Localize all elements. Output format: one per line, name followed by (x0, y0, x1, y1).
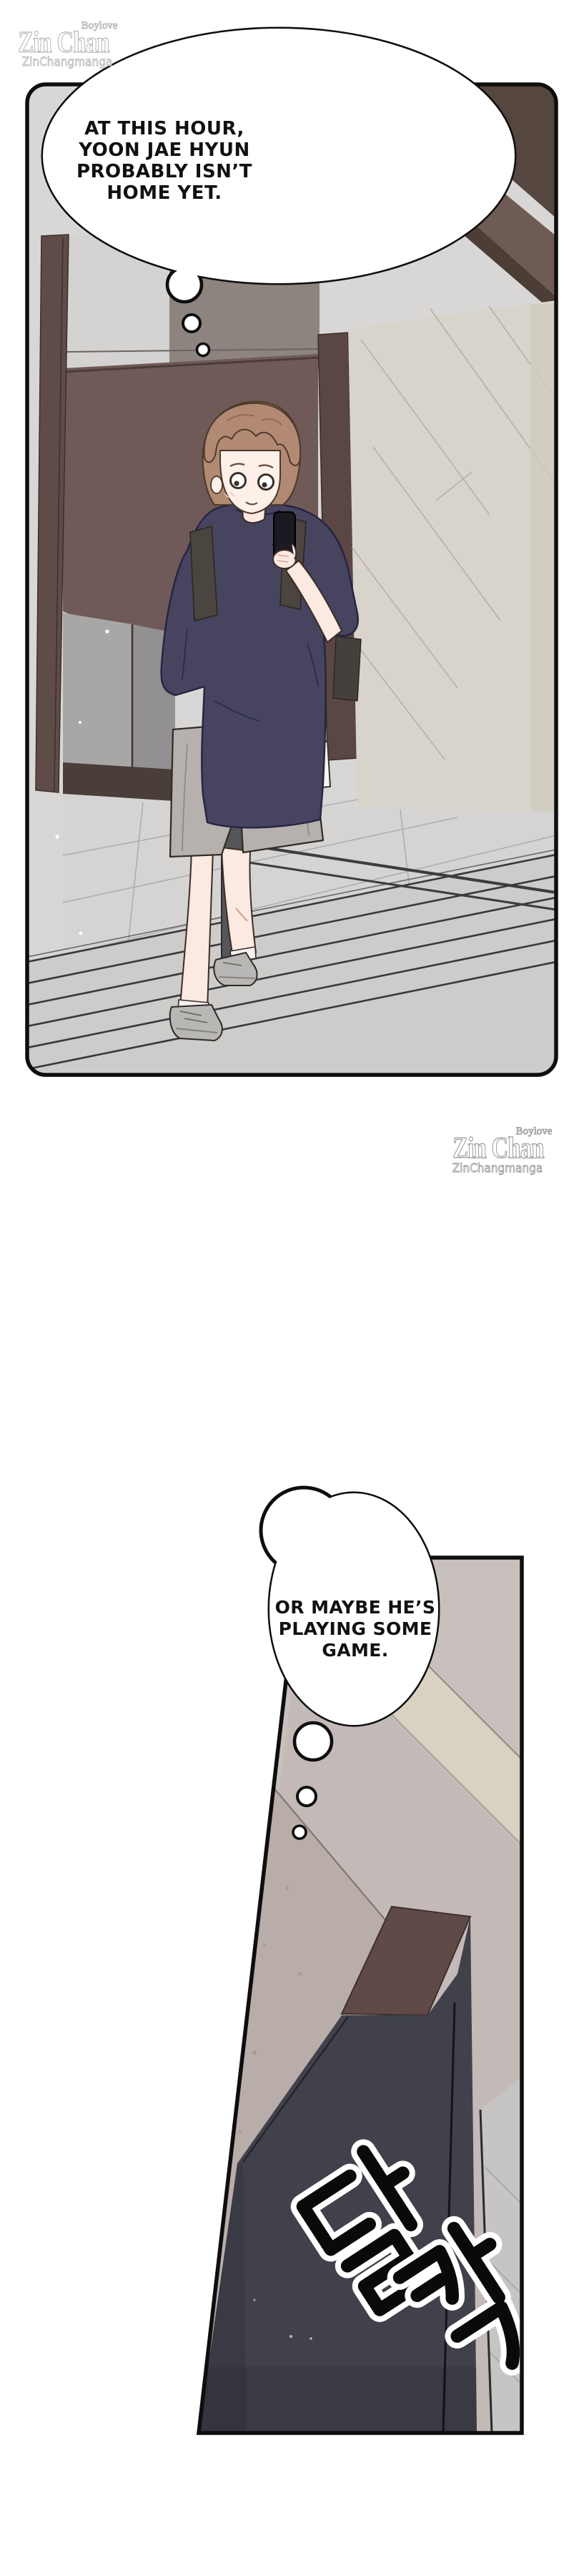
right-eye (259, 475, 274, 490)
bubble2-line-1: OR MAYBE HE’S (275, 1597, 436, 1618)
character-head (203, 402, 300, 513)
bubble1-line-2: YOON JAE HYUN (78, 139, 249, 161)
thought-trail-dot (197, 344, 209, 356)
panel1-glass-door (63, 613, 175, 785)
glass-sparkle (79, 721, 81, 724)
ear (211, 476, 222, 493)
bubble2-line-2: PLAYING SOME (279, 1618, 432, 1639)
glass-sparkle (105, 629, 109, 633)
webtoon-page: AT THIS HOUR, YOON JAE HYUN PROBABLY ISN… (0, 0, 579, 2576)
thought-trail-dot (297, 1787, 316, 1806)
watermark-top: Boylove Zin Chan ZinChangmanga (18, 20, 118, 69)
watermark-middle: Boylove Zin Chan ZinChangmanga (452, 1126, 553, 1175)
watermark-subtitle: ZinChangmanga (452, 1161, 543, 1175)
backpack-side (333, 636, 361, 701)
bubble1-line-4: HOME YET. (107, 182, 222, 204)
panel1-stone-wall (348, 300, 556, 812)
bubble2-line-3: GAME. (322, 1640, 388, 1661)
watermark-brand: Zin Chan (452, 1131, 544, 1165)
thought-trail-dot (183, 315, 200, 332)
bubble1-line-3: PROBABLY ISN’T (76, 161, 252, 182)
bubble1-line-1: AT THIS HOUR, (84, 118, 244, 139)
thought-trail-dot (293, 1826, 306, 1839)
watermark-subtitle: ZinChangmanga (22, 54, 113, 69)
left-eye (231, 473, 246, 488)
